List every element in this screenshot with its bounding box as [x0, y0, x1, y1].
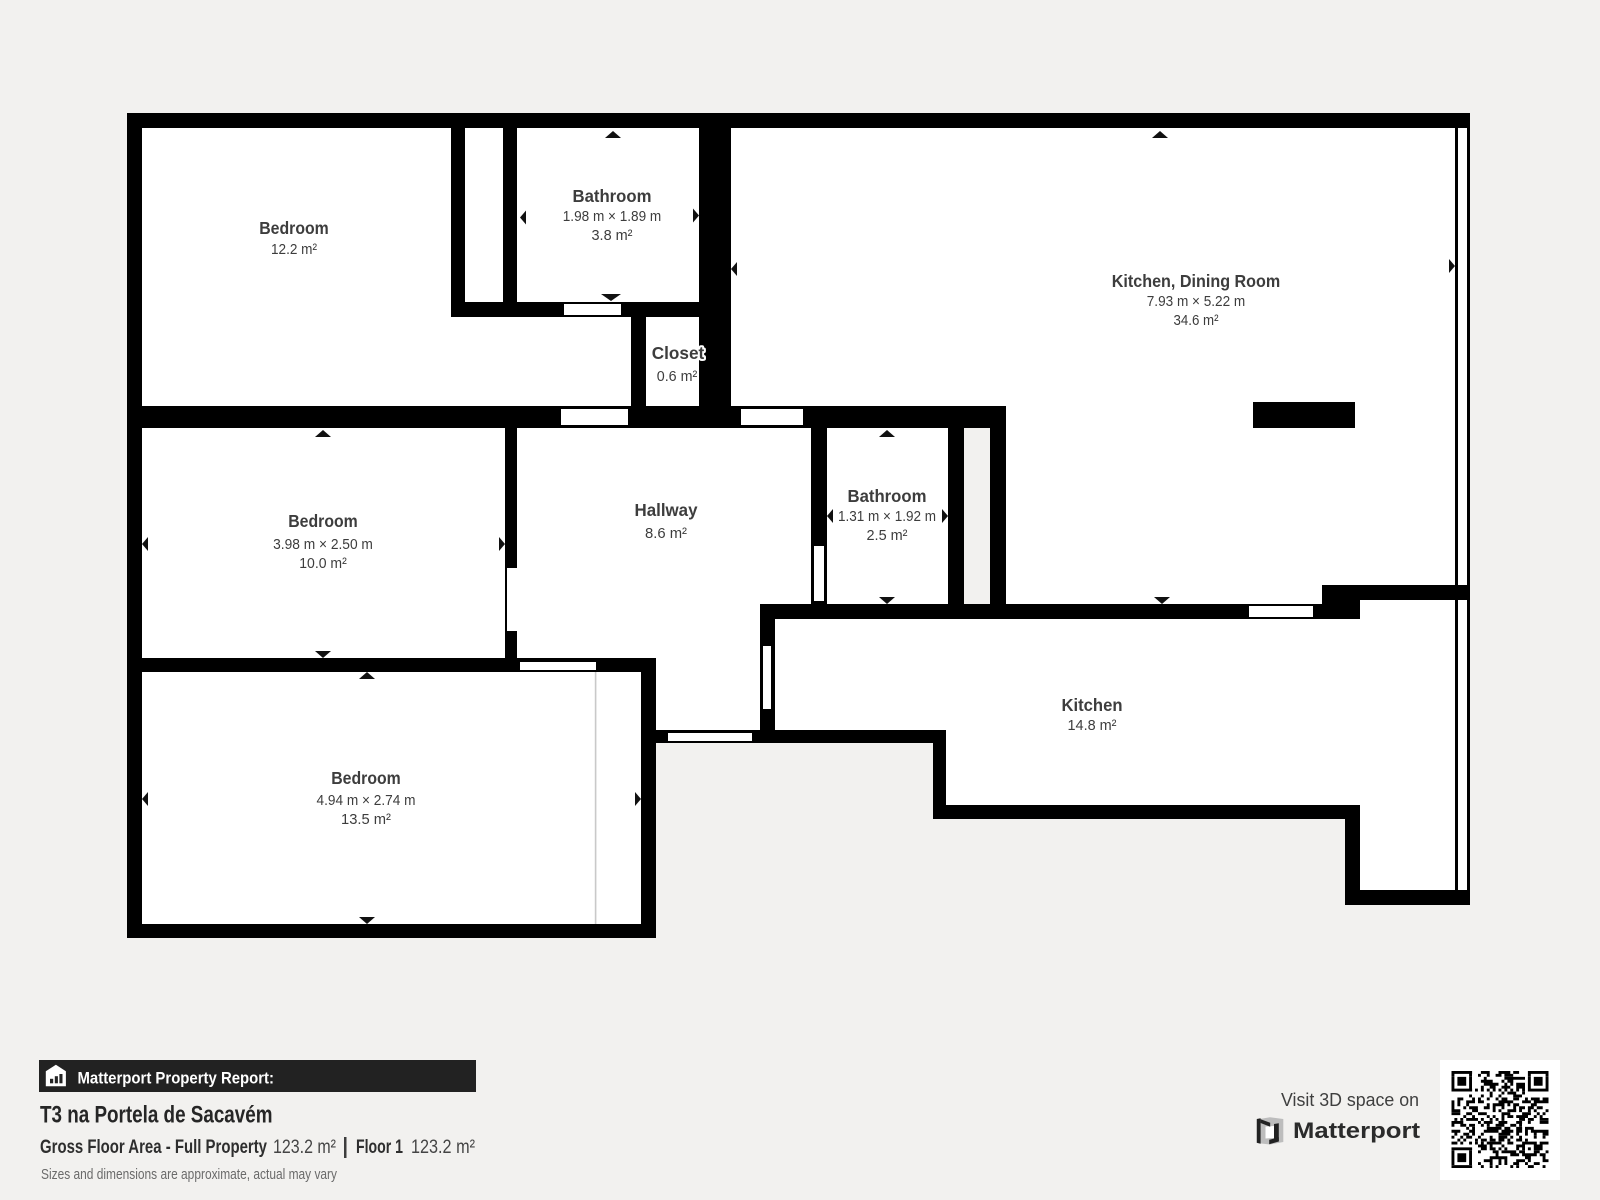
svg-text:34.6 m²: 34.6 m² [1174, 312, 1219, 329]
svg-text:3.8 m²: 3.8 m² [592, 227, 633, 244]
svg-text:14.8 m²: 14.8 m² [1068, 717, 1117, 734]
svg-text:Bedroom: Bedroom [259, 218, 329, 238]
svg-text:13.5 m²: 13.5 m² [341, 811, 391, 828]
svg-text:Matterport: Matterport [1293, 1118, 1421, 1143]
svg-text:12.2 m²: 12.2 m² [271, 241, 317, 258]
svg-text:Bathroom: Bathroom [848, 486, 927, 506]
svg-text:Matterport Property Report:: Matterport Property Report: [78, 1070, 275, 1088]
svg-text:2.5 m²: 2.5 m² [867, 527, 908, 544]
svg-text:Closet: Closet [652, 343, 705, 363]
svg-text:0.6 m²: 0.6 m² [657, 368, 698, 385]
svg-text:Kitchen: Kitchen [1062, 695, 1123, 715]
svg-text:4.94 m × 2.74 m: 4.94 m × 2.74 m [317, 792, 416, 809]
svg-text:10.0 m²: 10.0 m² [299, 555, 347, 572]
svg-text:8.6 m²: 8.6 m² [645, 525, 687, 542]
svg-text:Gross Floor Area - Full Proper: Gross Floor Area - Full Property [40, 1137, 267, 1158]
svg-text:1.31 m × 1.92 m: 1.31 m × 1.92 m [838, 508, 936, 525]
svg-text:1.98 m × 1.89 m: 1.98 m × 1.89 m [563, 208, 662, 225]
svg-text:Bedroom: Bedroom [288, 511, 358, 531]
svg-text:123.2 m²: 123.2 m² [273, 1137, 336, 1158]
svg-text:Kitchen, Dining Room: Kitchen, Dining Room [1112, 271, 1281, 291]
svg-text:Bedroom: Bedroom [331, 768, 401, 788]
svg-text:123.2 m²: 123.2 m² [411, 1137, 475, 1158]
svg-text:Bathroom: Bathroom [573, 186, 652, 206]
svg-text:Floor 1: Floor 1 [356, 1137, 403, 1158]
svg-text:T3 na Portela de Sacavém: T3 na Portela de Sacavém [40, 1102, 273, 1129]
svg-text:Sizes and dimensions are appro: Sizes and dimensions are approximate, ac… [41, 1166, 337, 1183]
svg-text:Visit 3D space on: Visit 3D space on [1281, 1089, 1419, 1110]
svg-text:Hallway: Hallway [635, 500, 698, 520]
svg-text:7.93 m × 5.22 m: 7.93 m × 5.22 m [1147, 293, 1246, 310]
svg-text:3.98 m × 2.50 m: 3.98 m × 2.50 m [273, 536, 373, 553]
